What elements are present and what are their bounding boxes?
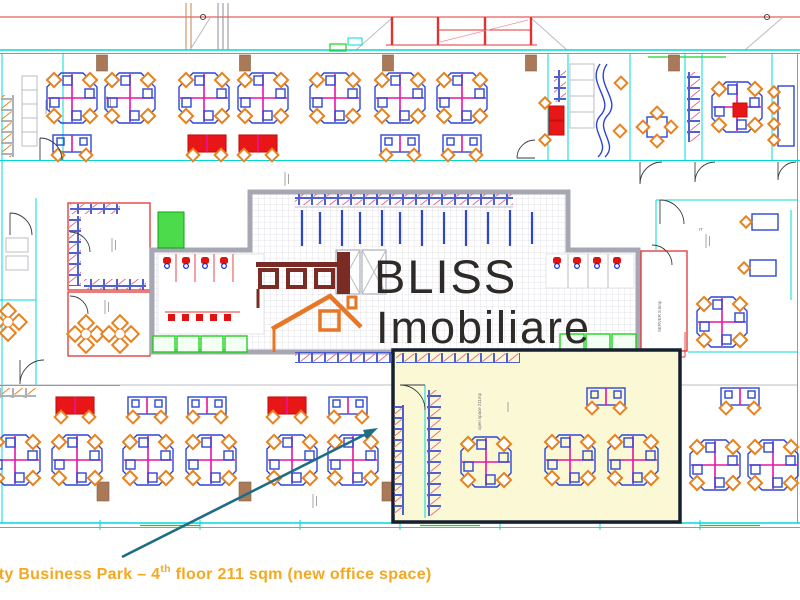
desk-cluster: [123, 435, 173, 485]
toilet-block-left: [158, 254, 264, 334]
desk-cluster: [461, 437, 511, 487]
desk-cluster: [186, 435, 236, 485]
desk-cluster: [310, 73, 360, 123]
desk-cluster: [437, 73, 487, 123]
desk-cluster: [52, 435, 102, 485]
desk-cluster: [238, 73, 288, 123]
open-space-label: open space 211mp: [477, 392, 482, 430]
caption: ity Business Park – 4th floor 211 sqm (n…: [0, 563, 432, 583]
server-room-label: SERVER 8.5mp: [657, 300, 662, 332]
logo-line2: Imobiliare: [376, 302, 591, 353]
it-room-label: IT: [699, 227, 703, 232]
desk-cluster: [608, 435, 658, 485]
caption-prefix: ity Business Park – 4: [0, 566, 160, 583]
desk-cluster: [690, 440, 740, 490]
floor-plan-page: SERVER 8.5mp IT: [0, 0, 800, 600]
desk-cluster: [47, 73, 97, 123]
desk-cluster: [328, 435, 378, 485]
logo-line1: BLISS: [374, 250, 517, 303]
desk-cluster: [375, 73, 425, 123]
desk-cluster: [105, 73, 155, 123]
highlight-zone: open space 211mp: [393, 350, 680, 522]
desk-cluster: [697, 297, 747, 347]
caption-superscript: th: [160, 563, 171, 575]
desk-cluster: [545, 435, 595, 485]
caption-suffix: floor 211 sqm (new office space): [171, 566, 432, 583]
floor-plan-drawing: SERVER 8.5mp IT: [0, 0, 800, 600]
desk-cluster: [267, 435, 317, 485]
desk-cluster: [179, 73, 229, 123]
desk-cluster: [748, 440, 798, 490]
